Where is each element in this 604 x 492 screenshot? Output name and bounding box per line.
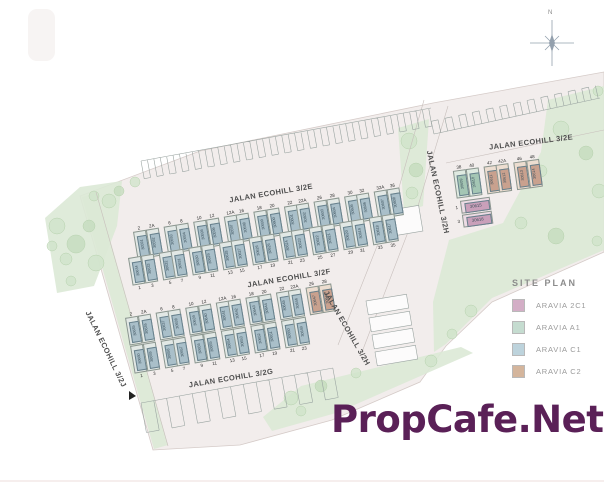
legend-label: ARAVIA 2C1: [536, 301, 586, 310]
legend-item: ARAVIA 2C1: [512, 299, 604, 312]
unit-number: 27: [329, 253, 336, 257]
legend-item: ARAVIA C2: [512, 365, 604, 378]
unit-number: 6: [158, 307, 165, 311]
scan-artifact: [28, 9, 55, 61]
lot-number: 30615: [469, 202, 482, 208]
unit-number: 8: [178, 219, 185, 223]
unit-number: 20: [260, 290, 267, 294]
unit-number: 10: [188, 302, 195, 306]
unit-number: 28: [328, 194, 335, 198]
unit-number: 30: [346, 191, 353, 195]
unit-number: 10: [196, 216, 203, 220]
lot-number: 30613: [519, 170, 525, 181]
unit-number: 3: [150, 371, 157, 375]
legend-swatch-aravia-c2: [512, 365, 525, 378]
unit-number: 1: [136, 285, 143, 289]
mouse-cursor: [129, 391, 136, 400]
unit-number: 33: [377, 245, 384, 249]
unit-number: 6: [166, 221, 173, 225]
unit-number: 19: [269, 263, 276, 267]
unit-number: 2: [135, 226, 142, 230]
unit-number: 7: [180, 366, 187, 370]
legend-item: ARAVIA C1: [512, 343, 604, 356]
unit-number: 28: [320, 280, 327, 284]
unit-number: 15: [239, 268, 246, 272]
unit-number: 32: [358, 189, 365, 193]
legend-swatch-aravia-c1: [512, 343, 525, 356]
unit-number: 22: [278, 287, 285, 291]
north-label: N: [548, 10, 552, 16]
unit-number: 40: [468, 163, 475, 167]
unit-number: 12: [208, 214, 215, 218]
unit-number: 11: [209, 273, 216, 277]
unit-number: 5: [166, 280, 173, 284]
unit-number: 26: [316, 196, 323, 200]
unit-number: 31: [359, 248, 366, 252]
unit-number: 19: [271, 351, 278, 355]
unit-number: 2A: [148, 224, 155, 228]
unit-number: 29: [347, 250, 354, 254]
unit-number: 46: [516, 157, 523, 161]
legend-label: ARAVIA C2: [536, 367, 581, 376]
unit-number: 15: [241, 356, 248, 360]
unit-number: 1: [454, 204, 459, 211]
unit-number: 36: [388, 184, 395, 188]
legend-title: SITE PLAN: [512, 278, 604, 288]
unit-number: 12A: [226, 211, 233, 215]
unit-number: 5: [168, 368, 175, 372]
unit-number: 22A: [298, 199, 305, 203]
unit-number: 32A: [376, 186, 383, 190]
unit-number: 17: [258, 353, 265, 357]
unit-number: 9: [198, 363, 205, 367]
legend: SITE PLAN ARAVIA 2C1 ARAVIA A1 ARAVIA C1…: [512, 278, 604, 387]
unit-number: 48: [528, 155, 535, 159]
legend-swatch-aravia-a1: [512, 321, 525, 334]
unit-number: 13: [226, 270, 233, 274]
unit-number: 18: [248, 292, 255, 296]
unit-number: 2: [127, 312, 134, 316]
unit-number: 35: [389, 243, 396, 247]
unit-number: 42A: [498, 159, 505, 163]
unit-number: 12A: [218, 297, 225, 301]
unit-number: 38: [455, 165, 462, 169]
unit-number: 21: [288, 348, 295, 352]
unit-number: 16: [238, 209, 245, 213]
unit-number: 23: [301, 346, 308, 350]
unit-number: 26: [308, 282, 315, 286]
unit-number: 22A: [290, 285, 297, 289]
unit-number: 18: [256, 206, 263, 210]
lot-body: 30610: [465, 167, 482, 197]
unit-number: 8: [170, 305, 177, 309]
cluster-aravia-2c1: 130615330616: [452, 197, 494, 230]
legend-swatch-aravia-2c1: [512, 299, 525, 312]
unit-number: 11: [211, 361, 218, 365]
watermark-propcafe: PropCafe.Net: [331, 398, 603, 441]
unit-number: 12: [200, 300, 207, 304]
unit-number: 42: [486, 161, 493, 165]
unit-number: 3: [148, 283, 155, 287]
legend-label: ARAVIA C1: [536, 345, 581, 354]
unit-number: 1: [138, 373, 145, 377]
unit-number: 3: [456, 218, 461, 225]
lot-number: 30612: [501, 172, 507, 183]
unit-number: 16: [230, 295, 237, 299]
unit-number: 23: [299, 258, 306, 262]
unit-number: 2A: [140, 310, 147, 314]
legend-item: ARAVIA A1: [512, 321, 604, 334]
lot-number: 30616: [471, 216, 484, 222]
unit-number: 17: [256, 265, 263, 269]
site-plan-page: 2305912A30592630593830594103059512305961…: [0, 0, 604, 492]
legend-label: ARAVIA A1: [536, 323, 581, 332]
unit-number: 20: [268, 204, 275, 208]
unit-number: 22: [286, 201, 293, 205]
lot-number: 30609: [458, 178, 464, 189]
lot-body: 30612: [495, 163, 512, 193]
unit-number: 25: [317, 255, 324, 259]
unit-number: 9: [196, 275, 203, 279]
lot-body: 30616: [462, 211, 494, 228]
north-arrow: [530, 20, 574, 66]
unit-number: 7: [178, 278, 185, 282]
unit-number: 21: [286, 260, 293, 264]
unit-number: 13: [228, 358, 235, 362]
